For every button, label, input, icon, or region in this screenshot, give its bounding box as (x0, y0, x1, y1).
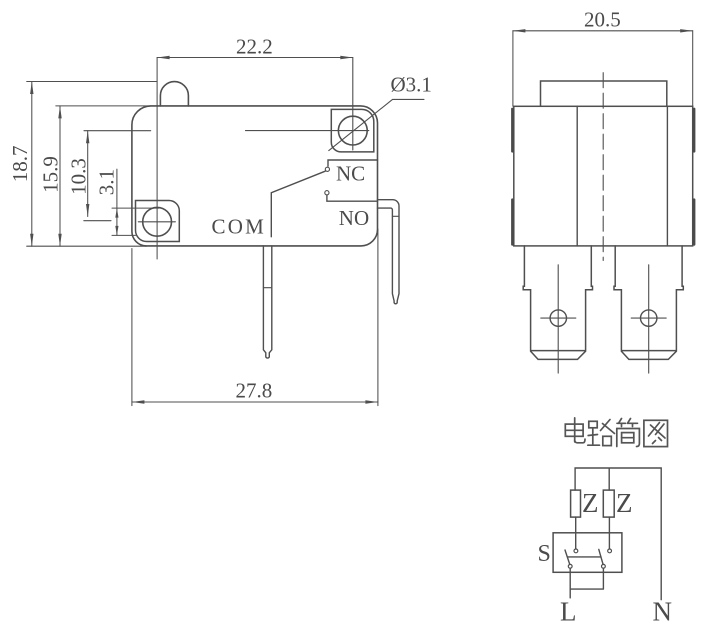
svg-text:27.8: 27.8 (236, 379, 273, 403)
svg-text:NO: NO (339, 206, 369, 230)
svg-text:N: N (653, 597, 673, 627)
svg-text:NC: NC (336, 162, 365, 186)
svg-text:10.3: 10.3 (67, 158, 91, 195)
svg-text:Z: Z (616, 488, 633, 518)
svg-text:20.5: 20.5 (584, 8, 621, 32)
svg-text:S: S (538, 541, 551, 567)
svg-text:Z: Z (582, 488, 599, 518)
svg-text:COM: COM (212, 215, 266, 239)
svg-text:L: L (560, 597, 577, 627)
svg-text:22.2: 22.2 (236, 35, 273, 59)
svg-text:3.1: 3.1 (95, 169, 119, 195)
svg-text:15.9: 15.9 (39, 156, 63, 193)
svg-text:Ø3.1: Ø3.1 (391, 73, 432, 97)
svg-text:18.7: 18.7 (8, 146, 32, 183)
